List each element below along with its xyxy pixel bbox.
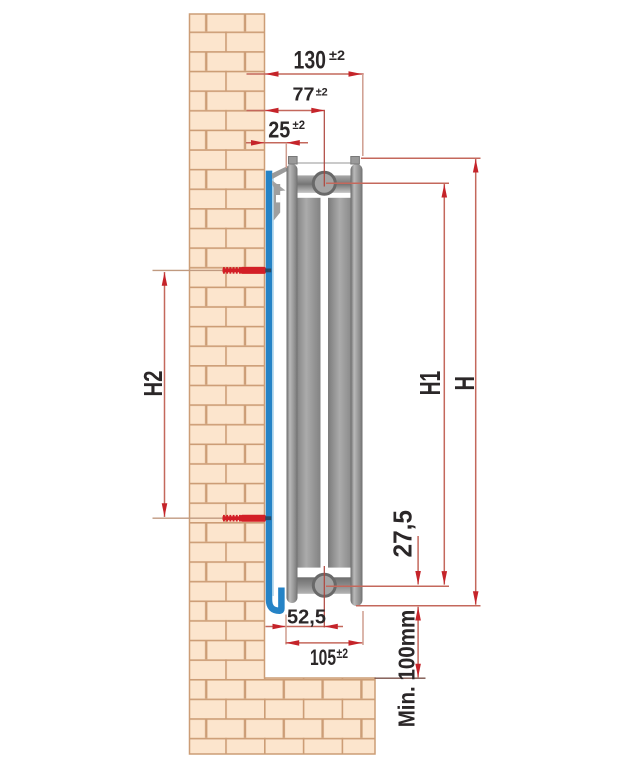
svg-text:Min. 100mm: Min. 100mm — [394, 610, 420, 728]
svg-text:±2: ±2 — [329, 47, 345, 63]
svg-text:77: 77 — [293, 84, 315, 104]
svg-text:±2: ±2 — [293, 120, 306, 132]
svg-text:H1: H1 — [415, 371, 447, 396]
svg-text:H2: H2 — [140, 371, 168, 397]
svg-text:±2: ±2 — [337, 646, 349, 661]
svg-text:27,5: 27,5 — [388, 510, 418, 558]
svg-text:130: 130 — [294, 47, 327, 75]
svg-text:±2: ±2 — [316, 87, 328, 99]
svg-text:25: 25 — [268, 116, 290, 142]
svg-text:52,5: 52,5 — [287, 606, 326, 629]
svg-text:H: H — [449, 376, 480, 391]
svg-text:105: 105 — [310, 645, 336, 670]
